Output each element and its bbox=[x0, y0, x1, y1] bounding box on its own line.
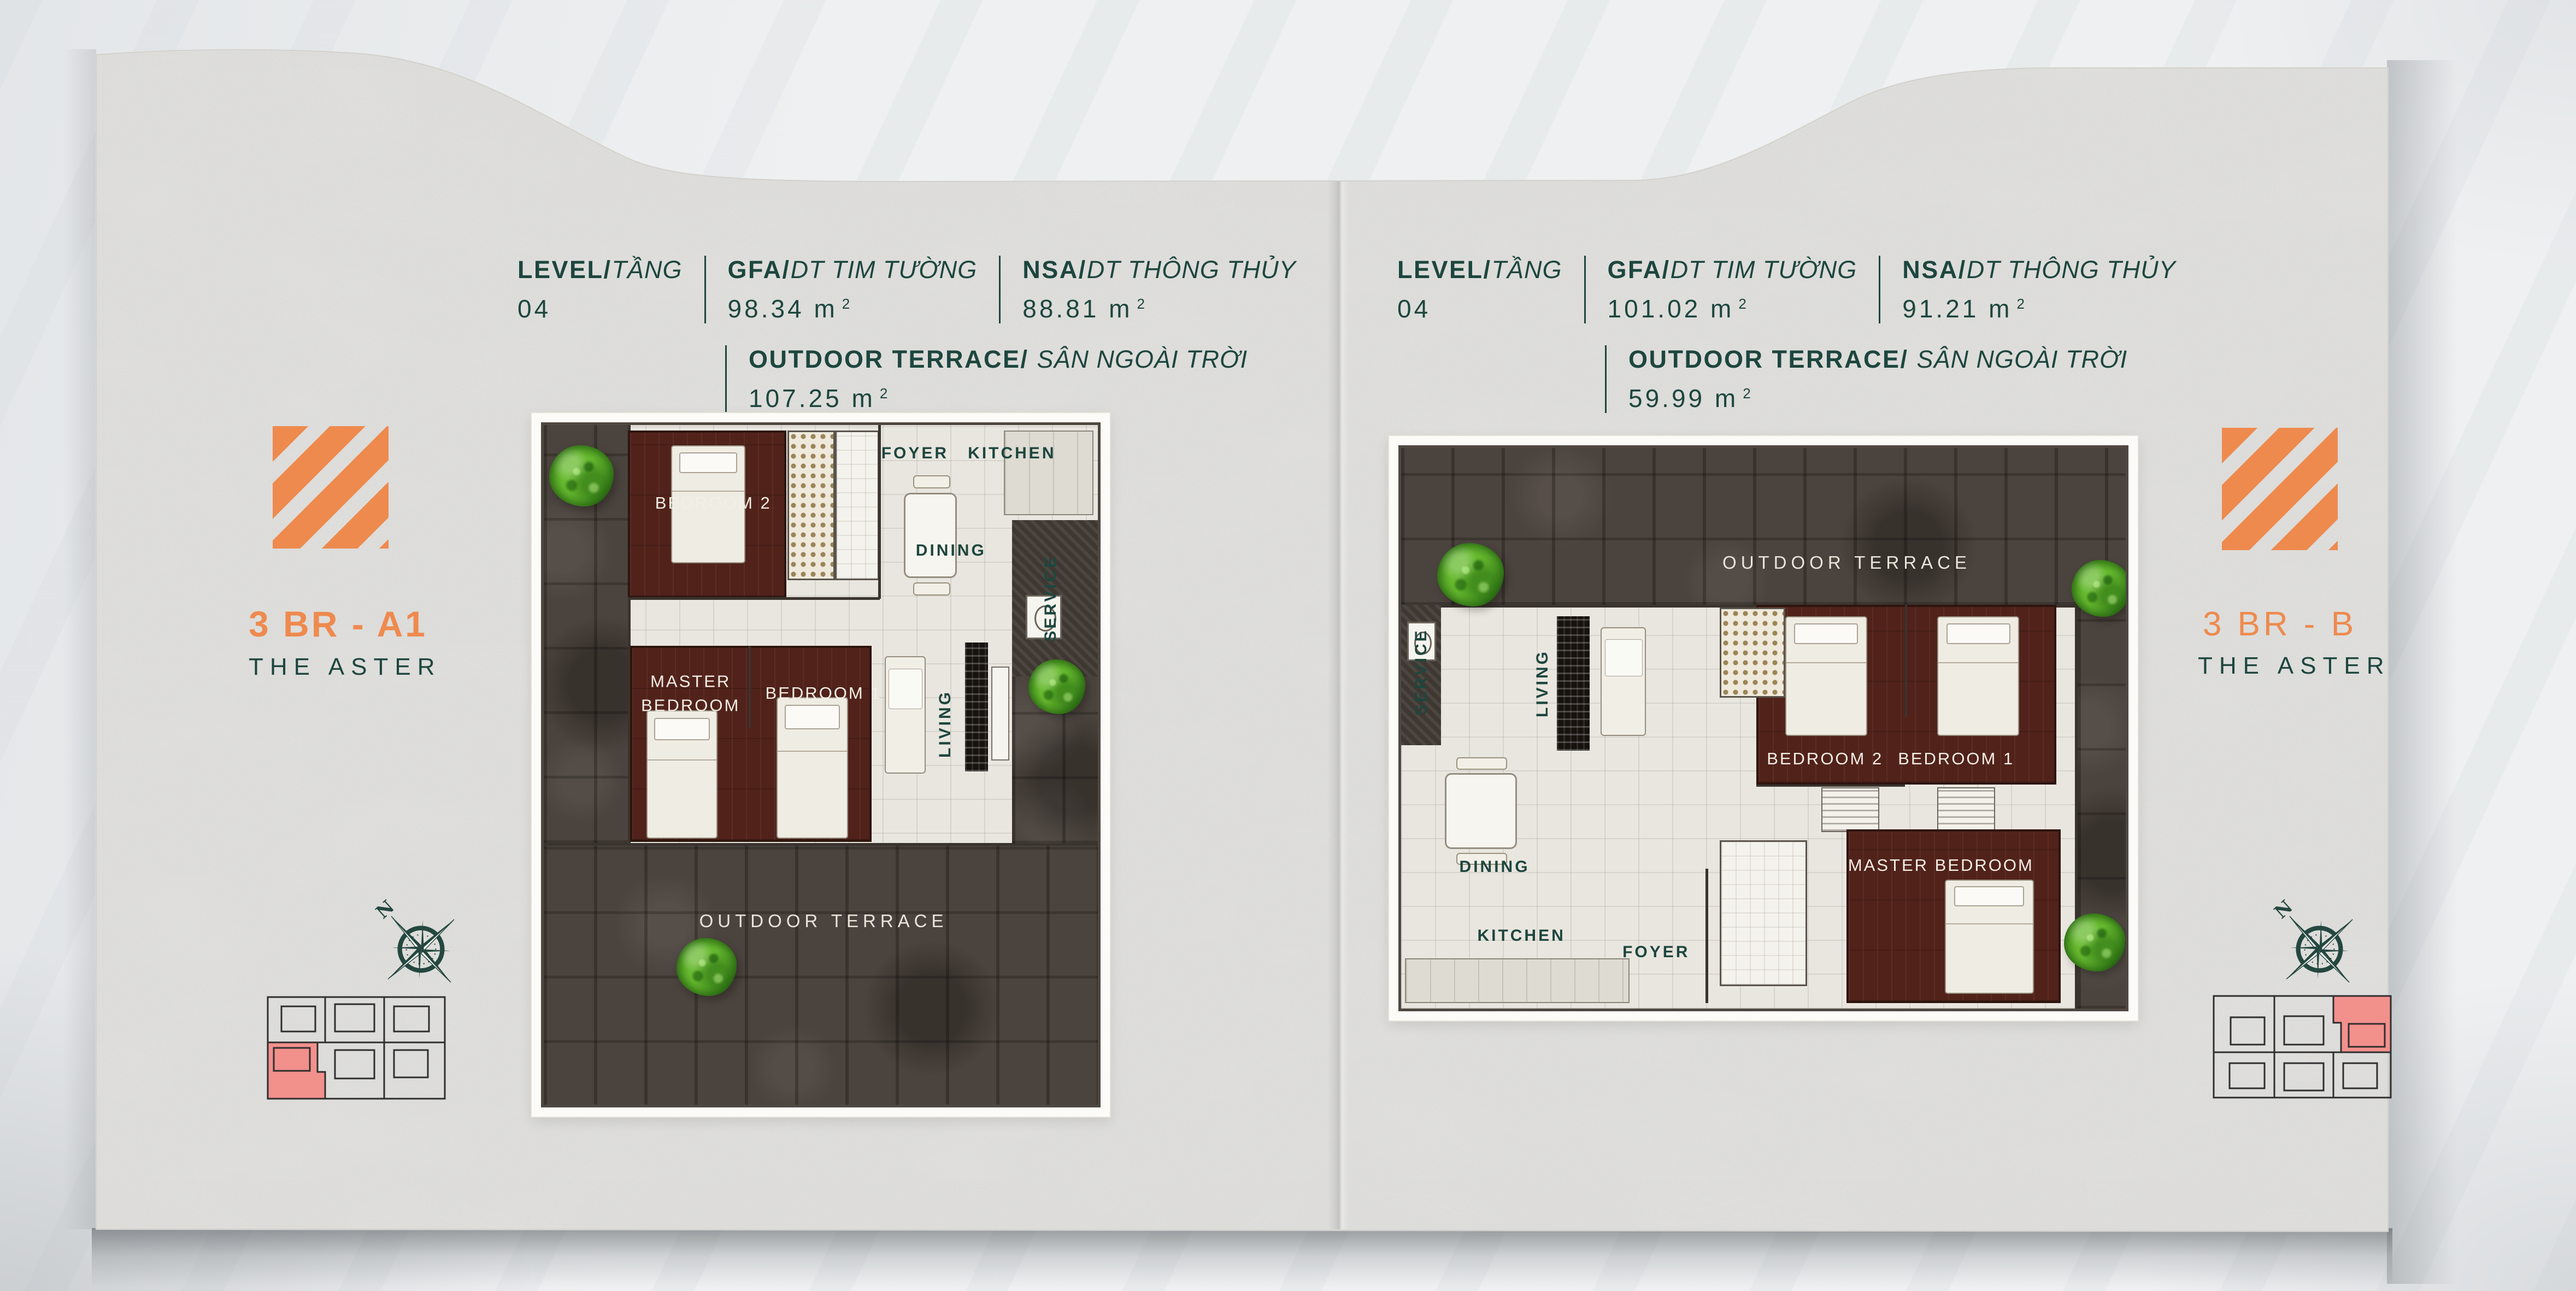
room-label-outdoor-terrace: OUTDOOR TERRACE bbox=[1722, 552, 1971, 573]
room-label-bedroom1: BEDROOM 1 bbox=[1898, 749, 2014, 769]
left-plan-terrace-bottom bbox=[544, 843, 1098, 1107]
tv-shelf-icon bbox=[965, 642, 989, 771]
right-gfa-label-vi: DT TIM TƯỜNG bbox=[1671, 256, 1857, 284]
left-terrace-cell: OUTDOOR TERRACE/ SÂN NGOÀI TRỜI 107.25 m… bbox=[725, 345, 1318, 413]
left-level-value: 04 bbox=[517, 294, 551, 323]
right-gfa-label: GFA/ bbox=[1608, 256, 1671, 284]
left-gfa-cell: GFA/DT TIM TƯỜNG 98.34 m2 bbox=[704, 256, 999, 323]
room-label-living: LIVING bbox=[1533, 650, 1552, 717]
compass-rose-icon bbox=[2269, 899, 2370, 1000]
right-nsa-label: NSA/ bbox=[1902, 256, 1967, 284]
plant-icon bbox=[549, 445, 614, 506]
left-gfa-value: 98.34 bbox=[728, 294, 804, 323]
left-unit-locator-keyplan bbox=[266, 995, 446, 1100]
right-nsa-label-vi: DT THÔNG THỦY bbox=[1967, 256, 2176, 284]
room-label-living: LIVING bbox=[936, 690, 955, 758]
right-level-label-vi: TẦNG bbox=[1492, 256, 1562, 284]
left-level-label: LEVEL/ bbox=[517, 256, 612, 284]
right-plan-bathroom bbox=[1720, 840, 1807, 986]
room-label-foyer: FOYER bbox=[881, 444, 949, 463]
dining-table-icon bbox=[904, 493, 957, 577]
room-label-kitchen: KITCHEN bbox=[968, 444, 1056, 463]
room-label-service: SERVICE bbox=[1042, 555, 1060, 642]
right-plan-kitchen-counter bbox=[1405, 958, 1630, 1003]
dining-table-icon bbox=[1445, 773, 1517, 849]
wall bbox=[1756, 785, 1905, 787]
room-label-dining: DINING bbox=[916, 541, 986, 560]
room-label-master-bedroom: MASTER BEDROOM bbox=[622, 670, 759, 717]
right-nsa-cell: NSA/DT THÔNG THỦY 91.21 m2 bbox=[1879, 256, 2198, 323]
right-terrace-label-vi: SÂN NGOÀI TRỜI bbox=[1917, 345, 2128, 373]
room-label-master-bedroom: MASTER BEDROOM bbox=[1848, 856, 2034, 875]
room-label-outdoor-terrace: OUTDOOR TERRACE bbox=[699, 911, 948, 932]
bed-icon bbox=[1937, 616, 2019, 736]
room-label-bedroom2: BEDROOM 2 bbox=[655, 493, 772, 513]
right-floor-plan: OUTDOOR TERRACE SERVICE LIVING BEDROOM 2… bbox=[1389, 436, 2138, 1021]
left-nsa-value: 88.81 bbox=[1022, 294, 1099, 323]
right-gfa-cell: GFA/DT TIM TƯỜNG 101.02 m2 bbox=[1584, 256, 1879, 323]
left-nsa-cell: NSA/DT THÔNG THỦY 88.81 m2 bbox=[999, 256, 1318, 323]
room-label-dining: DINING bbox=[1460, 858, 1530, 876]
plant-icon bbox=[1437, 543, 1504, 606]
right-level-label: LEVEL/ bbox=[1397, 256, 1492, 284]
left-nsa-label: NSA/ bbox=[1022, 256, 1087, 284]
tv-shelf-icon bbox=[1557, 616, 1590, 751]
room-label-foyer: FOYER bbox=[1622, 943, 1690, 962]
wardrobe-icon bbox=[1821, 787, 1879, 832]
room-label-bedroom2: BEDROOM 2 bbox=[1767, 749, 1883, 769]
right-plan-terrace-top bbox=[1401, 448, 2126, 608]
left-plan-kitchen-counter bbox=[1004, 431, 1093, 516]
right-nsa-value: 91.21 bbox=[1902, 294, 1979, 323]
plant-icon bbox=[1028, 659, 1085, 714]
wall-divider bbox=[1905, 605, 1907, 717]
right-terrace-label: OUTDOOR TERRACE/ bbox=[1628, 345, 1909, 373]
right-spec-header: LEVEL/TẦNG 04 GFA/DT TIM TƯỜNG 101.02 m2… bbox=[1397, 256, 2198, 413]
plant-icon bbox=[677, 938, 737, 996]
right-level-cell: LEVEL/TẦNG 04 bbox=[1397, 256, 1584, 323]
right-level-value: 04 bbox=[1397, 294, 1431, 323]
room-label-service: SERVICE bbox=[1412, 629, 1431, 716]
left-floor-plan: BEDROOM 2 FOYER KITCHEN DINING SERVICE L… bbox=[532, 413, 1110, 1117]
left-unit-logo: 3 BR - A1 THE ASTER bbox=[249, 426, 413, 681]
room-label-bedroom1: BEDROOM 1 bbox=[766, 683, 882, 703]
left-gfa-label-vi: DT TIM TƯỜNG bbox=[791, 256, 978, 284]
brochure-spread: LEVEL/TẦNG 04 GFA/DT TIM TƯỜNG 98.34 m2 … bbox=[0, 0, 2576, 1291]
bed-icon bbox=[1945, 880, 2034, 994]
wall bbox=[628, 597, 880, 600]
right-unit-locator-keyplan bbox=[2212, 994, 2392, 1099]
aster-stripes-logo-icon bbox=[2222, 428, 2338, 550]
left-terrace-label: OUTDOOR TERRACE/ bbox=[749, 345, 1029, 373]
center-fold bbox=[1328, 181, 1350, 1229]
right-gfa-value: 101.02 bbox=[1608, 294, 1701, 323]
left-project-name: THE ASTER bbox=[249, 653, 413, 681]
right-unit-logo: 3 BR - B THE ASTER bbox=[2198, 428, 2362, 680]
room-label-kitchen: KITCHEN bbox=[1477, 927, 1565, 945]
wall bbox=[1705, 869, 1708, 1003]
sofa-icon bbox=[1601, 627, 1646, 736]
right-terrace-value: 59.99 bbox=[1628, 384, 1705, 412]
left-unit-name: 3 BR - A1 bbox=[249, 603, 413, 645]
left-plan-bathroom bbox=[835, 431, 879, 580]
left-level-cell: LEVEL/TẦNG 04 bbox=[517, 256, 704, 323]
compass-rose-icon: N bbox=[370, 899, 472, 1000]
bed-icon bbox=[777, 697, 848, 839]
left-spec-header: LEVEL/TẦNG 04 GFA/DT TIM TƯỜNG 98.34 m2 … bbox=[517, 256, 1318, 413]
sofa-icon bbox=[885, 656, 926, 774]
right-plan-wardrobe-tiles bbox=[1720, 608, 1785, 697]
right-project-name: THE ASTER bbox=[2198, 652, 2362, 680]
wardrobe-icon bbox=[1937, 787, 1995, 832]
left-terrace-value: 107.25 bbox=[749, 384, 842, 412]
plant-icon bbox=[2064, 913, 2125, 971]
left-level-label-vi: TẦNG bbox=[612, 256, 683, 284]
right-terrace-cell: OUTDOOR TERRACE/ SÂN NGOÀI TRỜI 59.99 m2 bbox=[1605, 345, 2198, 413]
left-plan-wardrobe-tiles bbox=[787, 431, 835, 580]
aster-stripes-logo-icon bbox=[273, 426, 389, 549]
right-unit-name: 3 BR - B bbox=[2198, 605, 2362, 644]
tv-console-icon bbox=[991, 667, 1009, 761]
bed-icon bbox=[646, 710, 718, 838]
left-terrace-label-vi: SÂN NGOÀI TRỜI bbox=[1037, 345, 1248, 373]
bed-icon bbox=[1785, 616, 1867, 736]
left-gfa-label: GFA/ bbox=[728, 256, 791, 284]
left-nsa-label-vi: DT THÔNG THỦY bbox=[1087, 256, 1296, 284]
